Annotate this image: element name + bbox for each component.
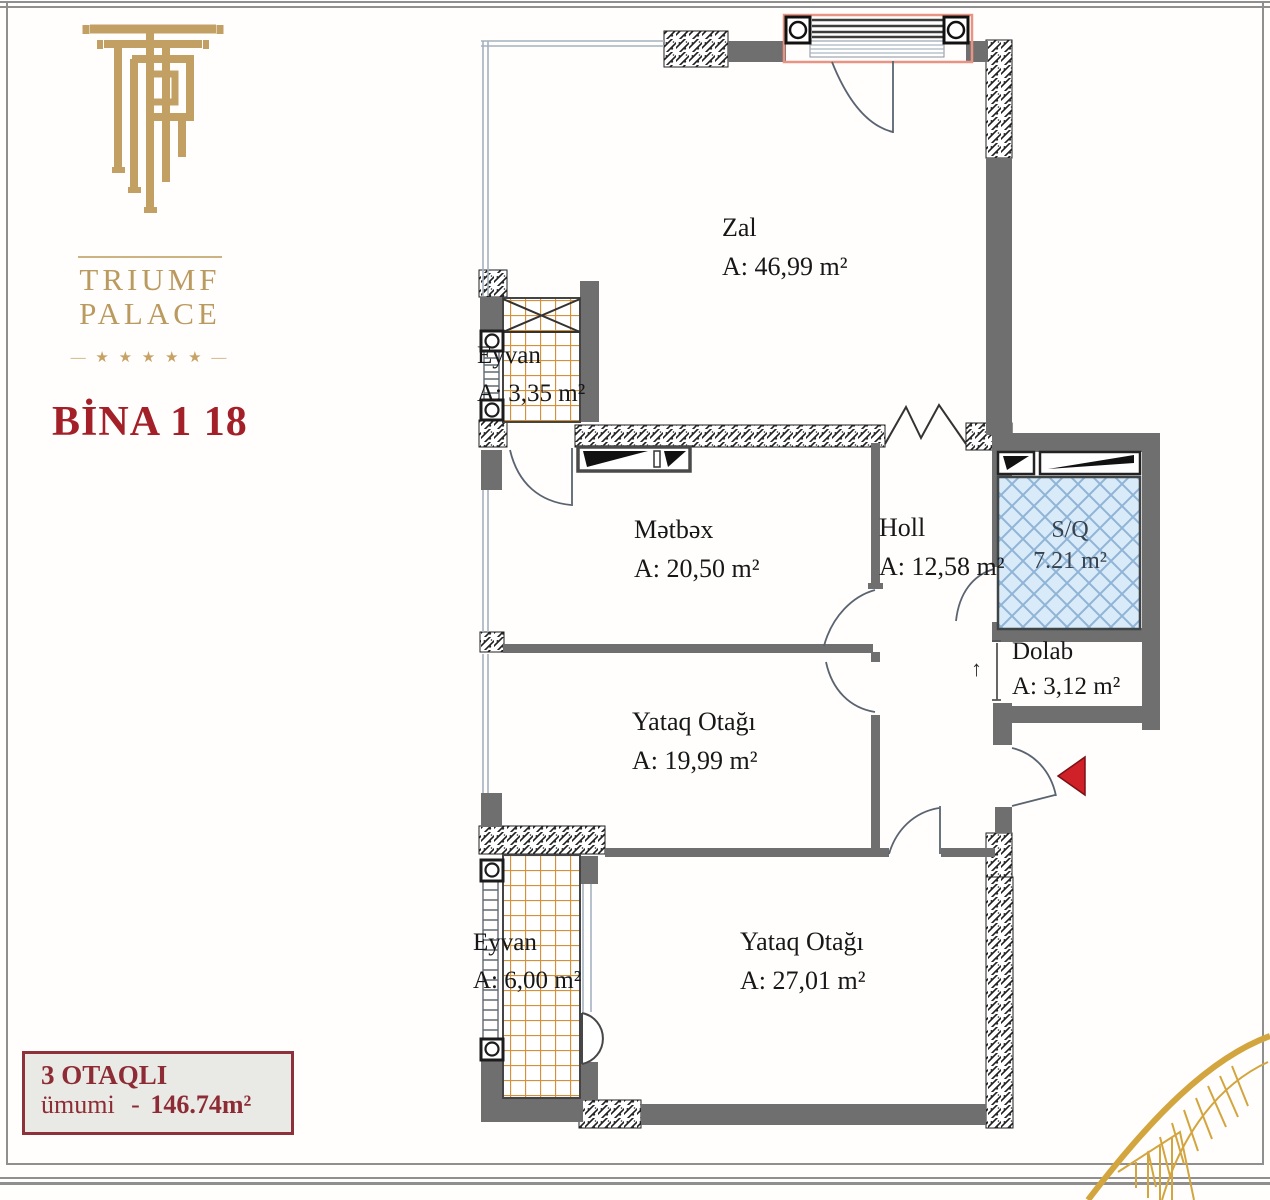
room-label-yataq-2: Yataq Otağı A: 27,01 m²: [740, 929, 866, 994]
room-label-yataq-1: Yataq Otağı A: 19,99 m²: [632, 709, 758, 774]
room-label-sq: S/Q 7.21 m²: [1000, 518, 1140, 573]
room-label-eyvan-bottom: Eyvan A: 6,00 m²: [473, 930, 581, 993]
room-name: S/Q: [1000, 518, 1140, 542]
room-area: A: 19,99 m²: [632, 748, 758, 774]
top-balcony: [784, 15, 972, 62]
wall-opening-zigzag: [885, 405, 966, 444]
metbex-eyvan-door: [510, 448, 572, 506]
room-label-metbex: Mətbəx A: 20,50 m²: [634, 517, 760, 582]
dolab-arrow-icon: ↑: [971, 656, 982, 682]
room-area: A: 12,58 m²: [879, 554, 1005, 580]
room-name: Zal: [722, 215, 848, 241]
gold-leaf-decoration: [1060, 1020, 1270, 1200]
floor-plan-page: TRIUMF PALACE — ★ ★ ★ ★ ★ — BİNA 1 18: [0, 0, 1270, 1200]
room-label-zal: Zal A: 46,99 m²: [722, 215, 848, 280]
room-label-holl: Holl A: 12,58 m²: [879, 515, 1005, 580]
room-name: Yataq Otağı: [740, 929, 866, 955]
room-name: Eyvan: [477, 343, 585, 368]
zal-balcony-door: [832, 61, 893, 133]
apartment-info-box: 3 OTAQLI ümumi - 146.74m²: [22, 1051, 294, 1135]
metbex-holl-door: [824, 590, 875, 646]
corridor-bedroom2-door: [889, 806, 940, 854]
room-name: Eyvan: [473, 930, 581, 955]
holl-bedroom1-door: [826, 662, 875, 712]
room-label-dolab: Dolab A: 3,12 m²: [1012, 639, 1120, 699]
eyvan-bottom-door: [582, 1013, 603, 1064]
room-count-label: 3 OTAQLI: [41, 1060, 291, 1090]
room-area: A: 3,12 m²: [1012, 674, 1120, 699]
total-area-dash: -: [131, 1090, 140, 1119]
total-area-prefix: ümumi: [41, 1090, 115, 1119]
room-area: 7.21 m²: [1000, 549, 1140, 573]
total-area-value: 146.74m²: [150, 1090, 251, 1119]
room-name: Yataq Otağı: [632, 709, 758, 735]
total-area-line: ümumi - 146.74m²: [41, 1090, 291, 1120]
dolab-door: [992, 641, 1001, 700]
kitchen-vent-unit: [578, 447, 690, 471]
room-name: Holl: [879, 515, 1005, 541]
room-area: A: 3,35 m²: [477, 381, 585, 406]
room-area: A: 6,00 m²: [473, 968, 581, 993]
entry-door: [1012, 748, 1056, 806]
room-area: A: 46,99 m²: [722, 254, 848, 280]
room-area: A: 27,01 m²: [740, 968, 866, 994]
room-label-eyvan-top: Eyvan A: 3,35 m²: [477, 343, 585, 406]
room-name: Dolab: [1012, 639, 1120, 664]
vent-shaft-icon: [998, 452, 1140, 474]
entry-arrow-icon: [1058, 757, 1085, 795]
room-name: Mətbəx: [634, 517, 760, 543]
room-area: A: 20,50 m²: [634, 556, 760, 582]
